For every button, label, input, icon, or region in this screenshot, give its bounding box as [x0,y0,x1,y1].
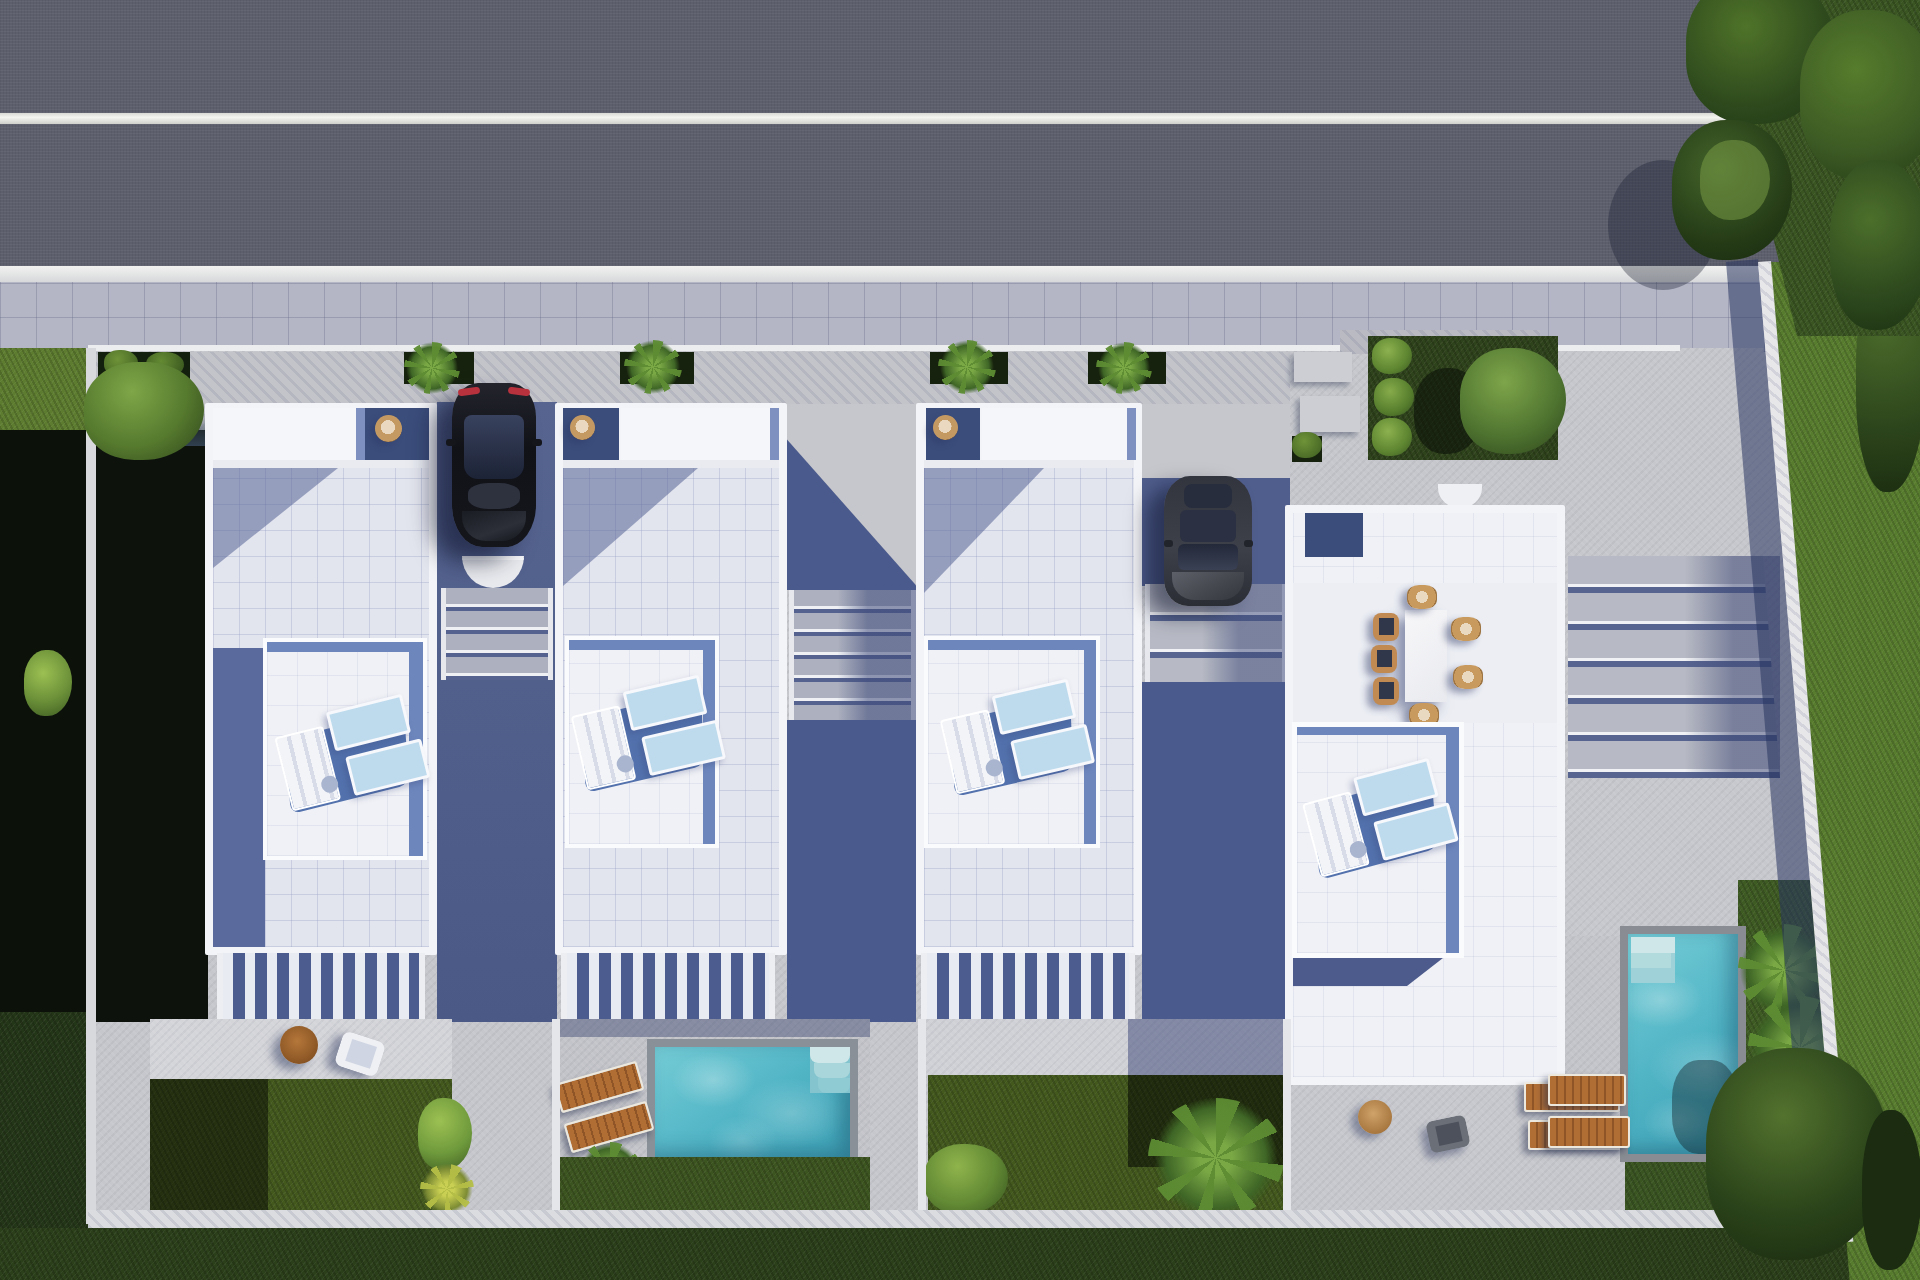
stepping-stone [1294,352,1352,382]
car-rear-window [1184,484,1232,508]
garden-wall [918,1019,926,1215]
villa1-pergola [217,953,425,1019]
sun-lounger-set [937,678,1093,803]
roadside-tree [1800,10,1920,180]
garden-wall [1283,1019,1291,1215]
dining-chair [1373,613,1399,641]
pool1-lawn [554,1157,870,1212]
car-roof-highlight [468,483,520,509]
villa3-terrace [924,636,1100,848]
villa-2 [555,403,787,955]
villa-4 [1285,505,1565,1085]
left-boundary-wall [86,348,96,1224]
wooden-lounger [1548,1074,1626,1106]
dining-chair [1371,645,1397,673]
villa1-parapet-band [213,460,429,468]
dining-chair [1451,617,1481,641]
car-mirror [446,439,456,446]
villa2-pergola [561,953,775,1019]
pool-step [814,1063,850,1078]
stairs-path-2-shade [789,590,916,720]
sun-lounger-set [271,693,428,820]
stairs-driveway-1 [441,588,553,680]
planter-fern [938,340,996,394]
dining-chair [1407,585,1437,609]
villa-3 [916,403,1142,955]
dining-table [1405,610,1447,702]
villa-1 [205,403,437,955]
villa4-terrace [1292,722,1464,958]
car-mirror [532,439,542,446]
pool-step [818,1078,850,1093]
left-lawn-shadowed [0,430,88,1020]
driveway-3-lower-shadow [1142,682,1290,1022]
villa4-entry-patio [1305,513,1363,557]
pool-step [1631,937,1675,953]
villa3-wicker-chair [933,415,958,440]
villa4-round-table [1358,1100,1392,1134]
road-curb-line [0,266,1800,282]
villa3-pergola [921,953,1135,1019]
bottom-boundary-wall [88,1210,1850,1228]
pool-step [1631,953,1671,968]
left-lawn-sunlit [0,348,88,440]
car-glass-roof [1180,510,1236,542]
garden-wall [552,1019,560,1215]
aerial-render [0,0,1920,1280]
villa1-yellow-palm [420,1164,474,1214]
terraced-steps-shade [1568,556,1780,778]
villa1-round-table [280,1026,318,1064]
planter-fern [1096,342,1152,394]
planter-fern [624,340,682,394]
wooden-lounger [1548,1116,1630,1148]
car-mirror [1244,540,1253,547]
villa1-roof-box [213,408,365,460]
villa2-terrace [565,636,719,848]
road-marking-line [0,113,1920,124]
villa3-palm [1148,1098,1284,1218]
dining-chair [1373,677,1399,705]
villa2-roof-box [621,408,779,460]
villa1-roof-shadow-band [213,648,265,947]
parked-car-black [452,383,536,547]
path-2-lower-shadow [787,720,916,1022]
side-garden-shadow [96,430,208,1022]
parked-car-gray [1164,476,1252,606]
stepping-stone [1300,396,1360,432]
villa3-patio-shadow [1128,1019,1290,1075]
pool1-steps [810,1047,850,1093]
villa2-parapet-band [563,460,779,468]
dining-chair [1453,665,1483,689]
bottom-lawn [0,1228,1920,1280]
villa3-roof-box [982,408,1136,460]
sun-lounger-set [568,674,724,799]
pool-step [810,1047,850,1063]
roadside-tree [1830,160,1920,330]
car-mirror [1164,540,1173,547]
villa2-wicker-chair [570,415,595,440]
bottom-right-tree-dark [1862,1110,1920,1270]
sun-lounger-set [1299,757,1457,885]
pool1-deck-shadow [554,1019,870,1037]
villa1-lawn-shadow [150,1079,268,1212]
car-windshield [1178,544,1238,570]
car-hood [1172,572,1244,600]
villa3-parapet-band [924,460,1134,468]
villa1-wicker-chair [375,415,402,442]
car-glass-roof [464,415,524,479]
villa1-terrace [263,638,427,860]
pool2-steps [1631,937,1675,983]
